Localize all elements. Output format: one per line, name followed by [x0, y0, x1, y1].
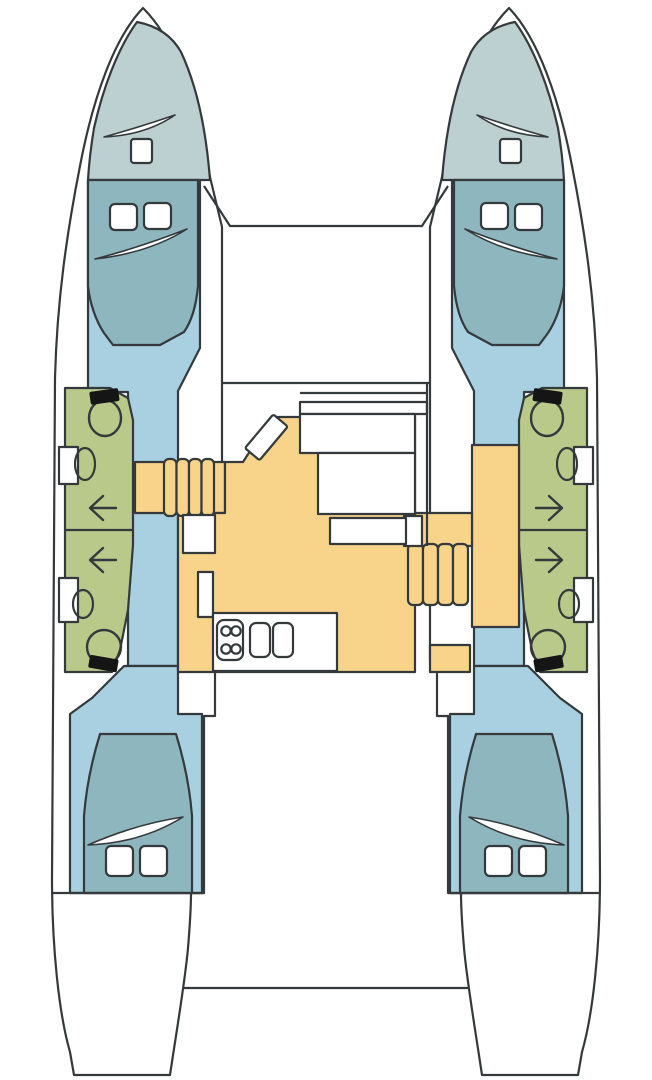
saloon-seat	[330, 518, 406, 544]
locker-below-steps	[183, 515, 215, 553]
galley-sink	[250, 623, 270, 657]
step	[189, 459, 202, 516]
pillow	[110, 204, 137, 230]
step	[177, 459, 190, 516]
pillow	[106, 846, 133, 876]
deck-plan-canvas	[0, 0, 652, 1080]
saloon-table	[318, 453, 415, 514]
starboard-companionway-steps	[408, 544, 468, 605]
saloon-bench	[300, 414, 415, 453]
seat-back-band	[300, 402, 427, 414]
galley-sink	[273, 623, 293, 657]
pillow	[140, 846, 167, 876]
step	[202, 459, 215, 516]
forward-berth	[88, 180, 198, 345]
starboard-landing	[472, 445, 519, 627]
step	[408, 544, 423, 605]
port-companionway-steps	[164, 459, 214, 516]
step	[423, 544, 438, 605]
step	[438, 544, 453, 605]
deck-hatch	[131, 139, 152, 163]
storage-inset	[59, 578, 78, 622]
stove-icon	[217, 620, 243, 660]
catamaran-plan-svg	[0, 0, 652, 1080]
step	[453, 544, 468, 605]
stove-top	[217, 620, 243, 660]
pillow	[144, 203, 171, 229]
galley-pocket	[198, 572, 213, 617]
forward-crossbeam	[204, 186, 448, 226]
aft-berth	[84, 734, 192, 893]
step	[164, 459, 177, 516]
starboard-stair-threshold	[415, 513, 472, 546]
aft-threshold	[430, 645, 470, 672]
